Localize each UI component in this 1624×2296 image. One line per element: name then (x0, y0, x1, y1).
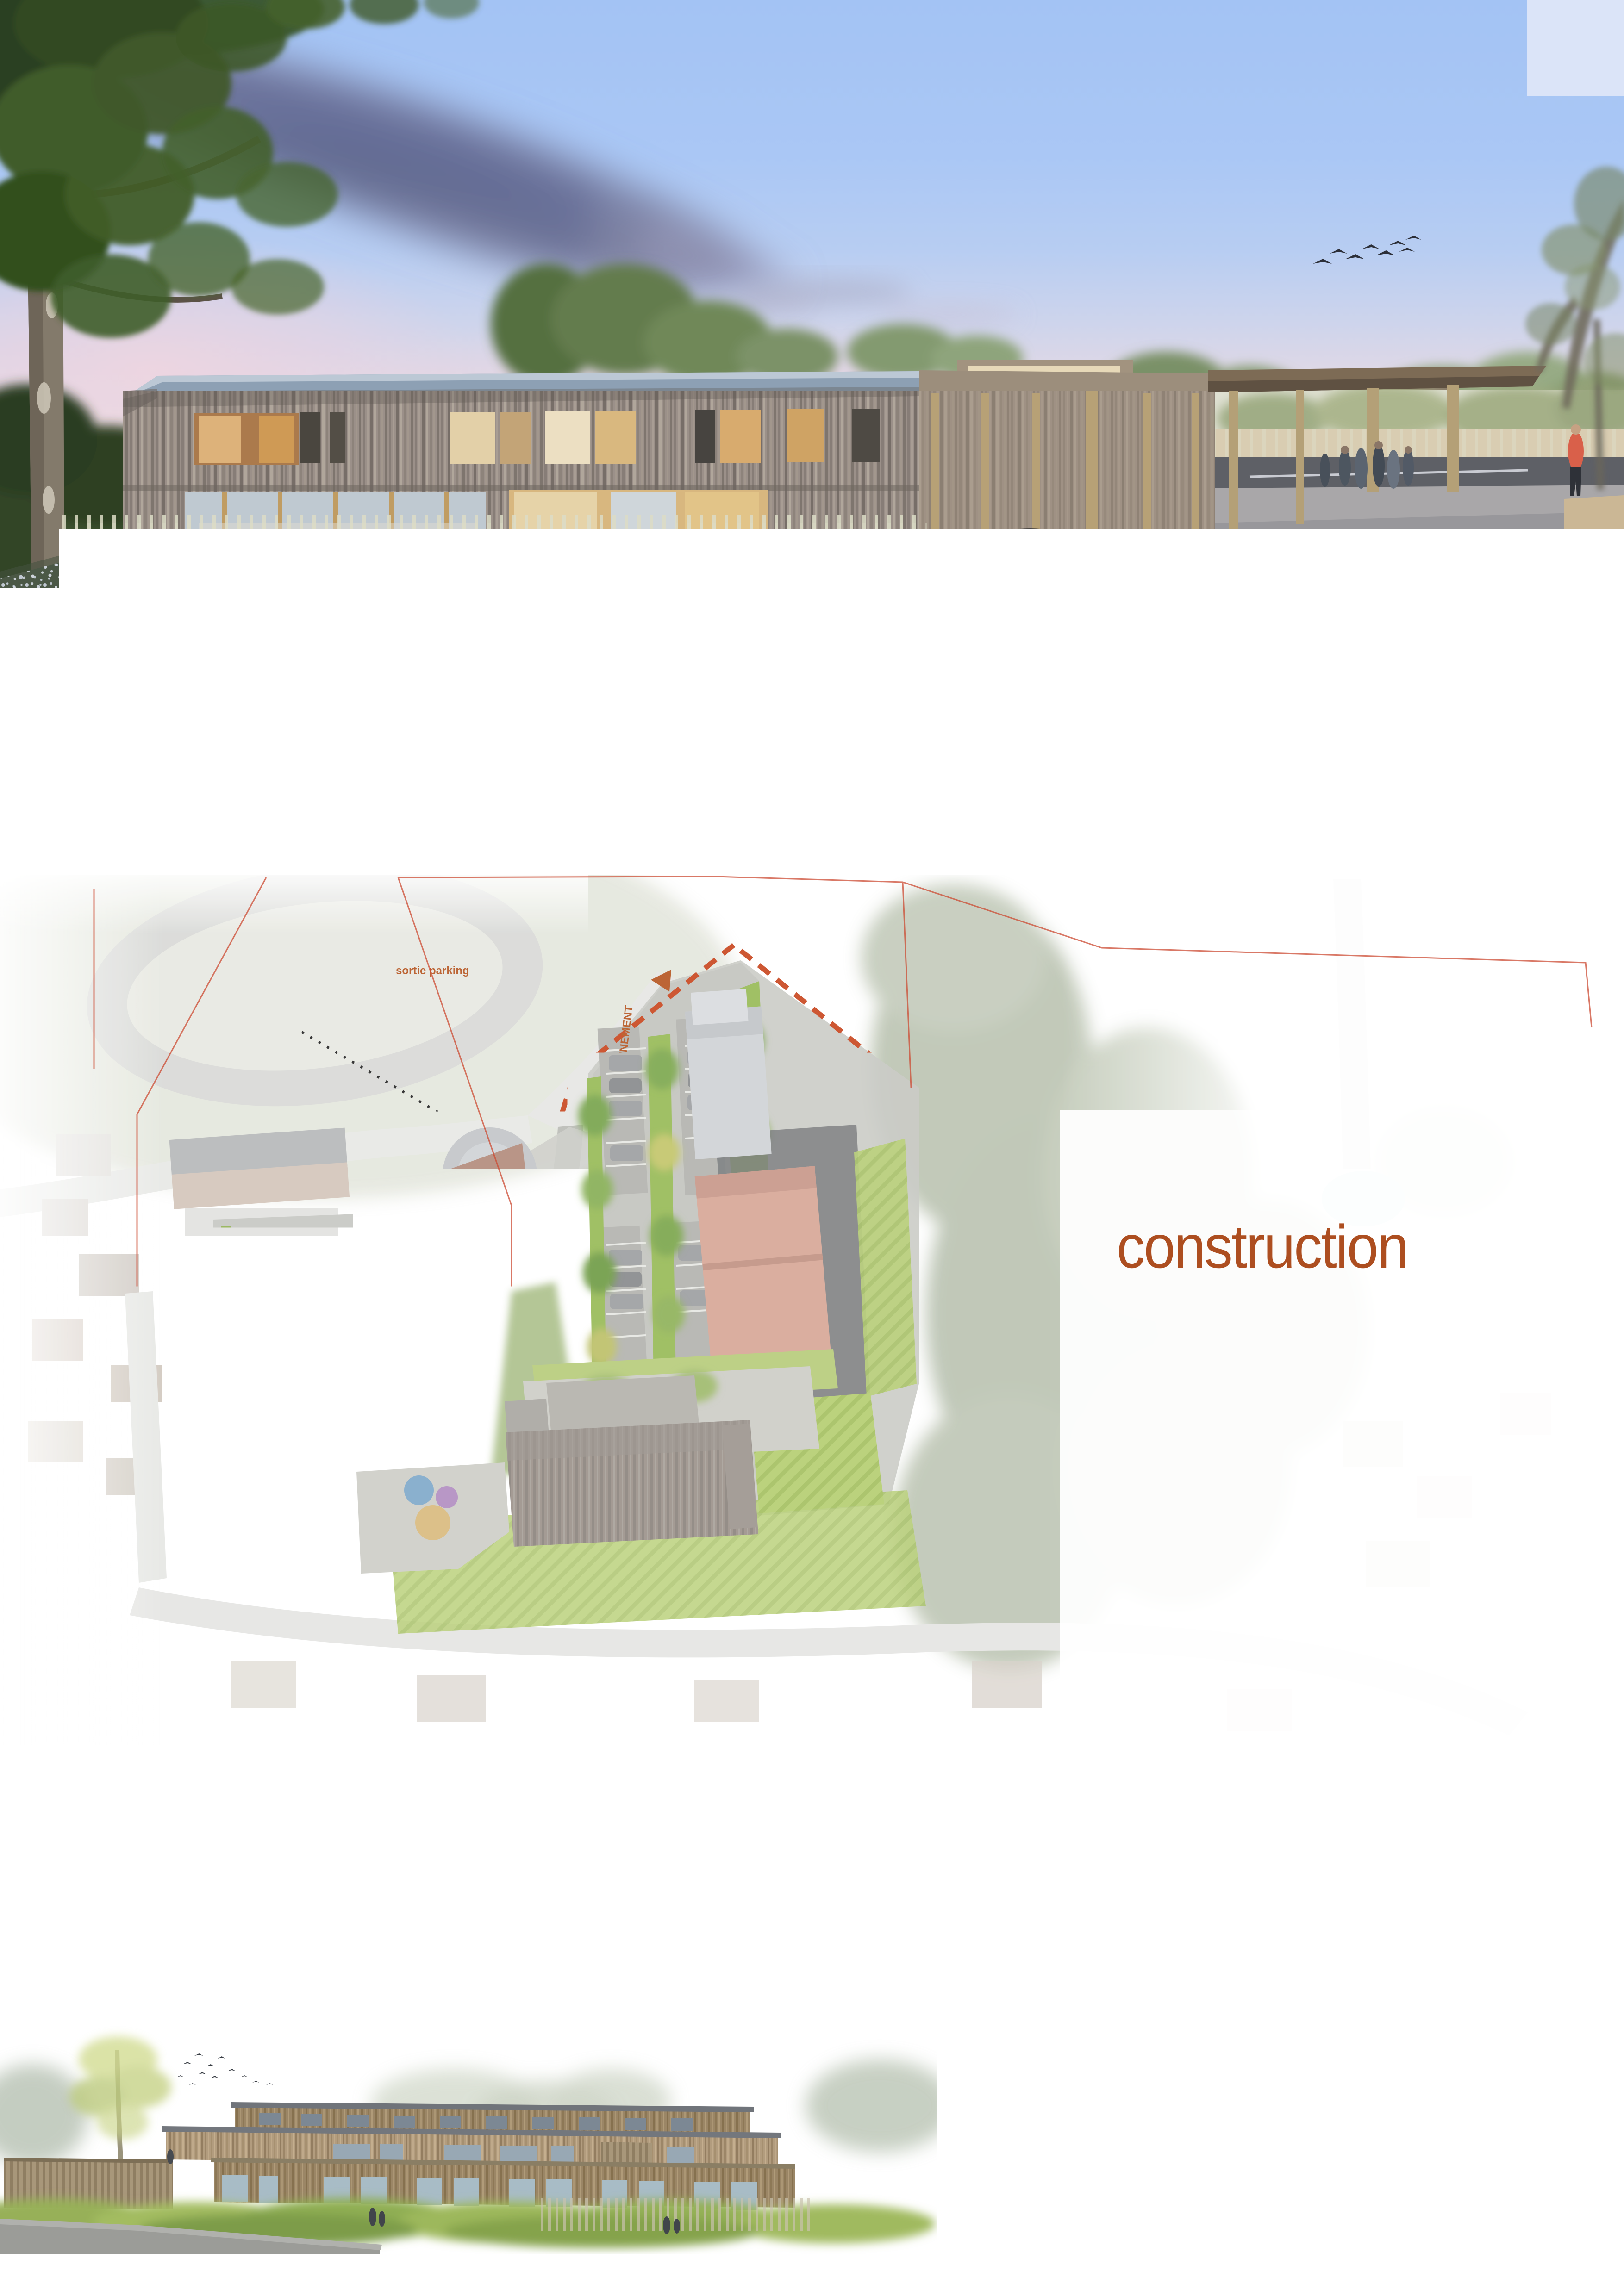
svg-text:auvent d'entrée: auvent d'entrée (1375, 2141, 1436, 2150)
svg-text:NORD: NORD (48, 1646, 81, 1656)
svg-text:clôture: clôture (1549, 1911, 1568, 1918)
svg-text:PARVIS: PARVIS (1140, 1884, 1174, 1894)
svg-text:préau élémentaire: préau élémentaire (602, 1923, 665, 1932)
svg-text:auvent d'entrée: auvent d'entrée (600, 1876, 660, 1886)
svg-text:rue du Jard: rue du Jard (951, 2220, 991, 2228)
svg-text:auvent d'entrée: auvent d'entrée (1245, 1889, 1296, 1897)
svg-text:garde-corps: garde-corps (580, 1863, 615, 1870)
svg-text:parking: parking (1590, 2165, 1617, 2173)
svg-text:préau élémentaire: préau élémentaire (1336, 2200, 1392, 2208)
svg-text:préau maternelle: préau maternelle (1382, 1889, 1437, 1897)
svg-text:clôture: clôture (1333, 2140, 1353, 2148)
svg-text:garde-corps: garde-corps (1266, 2155, 1301, 2163)
svg-text:cour élémentaire: cour élémentaire (1349, 2220, 1416, 2229)
svg-text:clôture: clôture (1136, 1876, 1155, 1883)
svg-text:rue du Jard: rue du Jard (1594, 1924, 1624, 1932)
svg-text:clôture: clôture (1565, 2150, 1584, 2157)
svg-text:cour de service: cour de service (1107, 2220, 1168, 2229)
svg-text:clôture: clôture (98, 1912, 119, 1920)
svg-text:PARVIS: PARVIS (859, 1887, 894, 1898)
svg-text:cour élémentaire: cour élémentaire (375, 1945, 456, 1956)
